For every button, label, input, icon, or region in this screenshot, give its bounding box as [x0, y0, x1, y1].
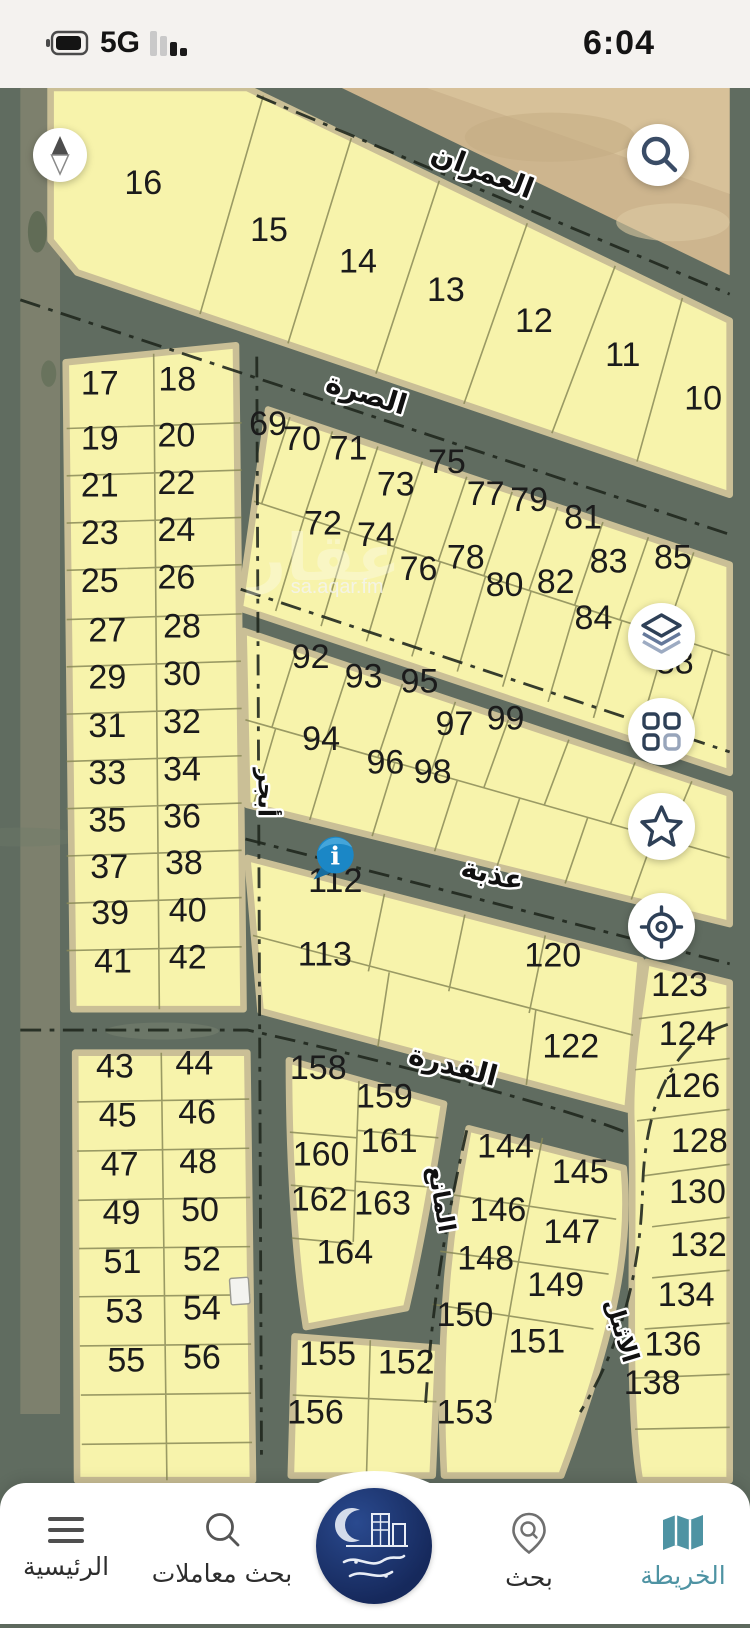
plot-number-78: 78 — [447, 538, 485, 576]
plot-number-113: 113 — [298, 936, 352, 974]
plot-number-153: 153 — [436, 1393, 493, 1431]
nav-label-deals-search: بحث معاملات — [142, 1559, 302, 1588]
plot-number-69: 69 — [249, 405, 287, 443]
plot-number-18: 18 — [158, 361, 196, 399]
plot-number-164: 164 — [316, 1234, 373, 1272]
plot-number-38: 38 — [165, 844, 203, 882]
nav-label-map: الخريطة — [603, 1561, 750, 1590]
plot-number-96: 96 — [366, 744, 404, 782]
plot-number-136: 136 — [645, 1325, 702, 1363]
plot-number-120: 120 — [524, 937, 581, 975]
plot-number-55: 55 — [107, 1341, 145, 1379]
plot-number-79: 79 — [510, 481, 548, 519]
layers-button[interactable] — [628, 603, 695, 670]
plot-number-93: 93 — [345, 658, 383, 696]
plot-number-45: 45 — [99, 1097, 137, 1135]
plot-number-53: 53 — [105, 1292, 143, 1330]
plot-number-138: 138 — [624, 1364, 681, 1402]
plot-number-159: 159 — [356, 1078, 413, 1116]
search-icon — [627, 124, 689, 186]
plot-number-44: 44 — [175, 1044, 213, 1082]
menu-icon — [48, 1517, 84, 1544]
nav-item-search[interactable]: بحث — [449, 1511, 609, 1592]
plot-number-46: 46 — [178, 1094, 216, 1132]
plot-number-149: 149 — [527, 1266, 584, 1304]
plot-number-48: 48 — [179, 1143, 217, 1181]
plot-number-27: 27 — [88, 611, 126, 649]
plot-number-70: 70 — [283, 420, 321, 458]
plot-number-35: 35 — [88, 801, 126, 839]
plot-number-17: 17 — [81, 364, 119, 402]
brand-logo-art — [316, 1488, 432, 1604]
plot-number-156: 156 — [287, 1393, 344, 1431]
plot-number-11: 11 — [605, 336, 640, 374]
plot-number-92: 92 — [292, 638, 330, 676]
plot-number-128: 128 — [671, 1122, 728, 1160]
plot-number-56: 56 — [183, 1339, 221, 1377]
plot-number-15: 15 — [250, 211, 288, 249]
map-search-button[interactable] — [627, 124, 689, 186]
plot-number-34: 34 — [163, 750, 201, 788]
plot-number-23: 23 — [81, 514, 119, 552]
plot-number-73: 73 — [377, 466, 415, 504]
plot-number-83: 83 — [590, 542, 628, 580]
plot-number-147: 147 — [543, 1213, 600, 1251]
favorites-button[interactable] — [628, 793, 695, 860]
plot-number-122: 122 — [542, 1027, 599, 1065]
my-location-button[interactable] — [628, 893, 695, 960]
plot-number-42: 42 — [169, 939, 207, 977]
plot-number-50: 50 — [181, 1191, 219, 1229]
plot-number-19: 19 — [81, 419, 119, 457]
plot-number-71: 71 — [330, 430, 368, 468]
plot-number-160: 160 — [293, 1135, 350, 1173]
nav-label-search: بحث — [449, 1563, 609, 1592]
plot-number-21: 21 — [81, 467, 119, 505]
clock: 6:04 — [583, 24, 655, 63]
plot-number-29: 29 — [88, 659, 126, 697]
info-pin-glyph: i — [330, 842, 340, 872]
pin-search-icon — [507, 1511, 551, 1555]
plot-number-94: 94 — [302, 720, 340, 758]
plot-number-151: 151 — [508, 1323, 565, 1361]
plot-number-152: 152 — [378, 1343, 435, 1381]
plot-number-41: 41 — [94, 942, 132, 980]
plot-number-82: 82 — [537, 563, 575, 601]
plot-number-16: 16 — [124, 164, 162, 202]
plot-number-146: 146 — [470, 1191, 527, 1229]
plot-number-126: 126 — [663, 1067, 720, 1105]
plot-number-162: 162 — [291, 1181, 348, 1219]
plot-number-36: 36 — [163, 798, 201, 836]
nav-item-home[interactable]: الرئيسية — [0, 1511, 146, 1581]
plot-number-12: 12 — [515, 302, 553, 340]
plot-number-52: 52 — [183, 1240, 221, 1278]
plot-number-30: 30 — [163, 655, 201, 693]
plot-number-95: 95 — [401, 662, 439, 700]
plot-number-24: 24 — [157, 511, 195, 549]
plot-number-75: 75 — [428, 443, 466, 481]
categories-button[interactable] — [628, 698, 695, 765]
plot-number-76: 76 — [400, 550, 438, 588]
plot-number-81: 81 — [564, 499, 602, 537]
small-map-marker — [229, 1277, 250, 1305]
battery-icon — [44, 30, 90, 56]
star-icon — [628, 793, 695, 860]
plot-number-33: 33 — [88, 754, 126, 792]
plot-number-28: 28 — [163, 608, 201, 646]
map-icon — [660, 1513, 706, 1553]
plot-number-158: 158 — [290, 1049, 347, 1087]
plot-number-150: 150 — [436, 1296, 493, 1334]
plot-number-155: 155 — [299, 1335, 356, 1373]
plot-number-144: 144 — [477, 1128, 534, 1166]
app-screen: { "status_bar": { "time": "6:04", "netwo… — [0, 0, 750, 1624]
plot-number-145: 145 — [552, 1153, 609, 1191]
compass-icon — [33, 128, 87, 182]
plot-number-98: 98 — [414, 753, 452, 791]
plot-number-25: 25 — [81, 562, 119, 600]
signal-bars-icon — [150, 29, 192, 57]
plot-number-148: 148 — [457, 1239, 514, 1277]
plot-number-37: 37 — [90, 848, 128, 886]
plot-number-26: 26 — [157, 558, 195, 596]
network-label: 5G — [100, 26, 140, 60]
watermark: عقار sa.aqar.fm — [246, 521, 400, 598]
bottom-nav-bar: الرئيسية بحث معاملات بحث — [0, 1483, 750, 1624]
nav-label-home: الرئيسية — [0, 1552, 146, 1581]
status-bar: 5G 6:04 — [0, 0, 750, 88]
crosshair-icon — [628, 893, 695, 960]
plot-number-161: 161 — [361, 1122, 418, 1160]
plot-number-22: 22 — [157, 464, 195, 502]
plot-number-77: 77 — [467, 475, 505, 513]
plot-number-13: 13 — [427, 271, 465, 309]
plot-number-32: 32 — [163, 703, 201, 741]
plot-number-49: 49 — [103, 1194, 141, 1232]
watermark-site: sa.aqar.fm — [291, 576, 384, 598]
plot-number-85: 85 — [654, 538, 692, 576]
plot-number-10: 10 — [684, 380, 722, 418]
layers-icon — [628, 603, 695, 670]
nav-item-deals-search[interactable]: بحث معاملات — [142, 1511, 302, 1588]
street-label: أبجر — [253, 767, 283, 817]
plot-number-40: 40 — [169, 891, 207, 929]
plot-number-163: 163 — [354, 1184, 411, 1222]
plot-number-99: 99 — [487, 699, 525, 737]
plot-number-132: 132 — [670, 1226, 727, 1264]
plot-number-123: 123 — [651, 966, 708, 1004]
plot-number-51: 51 — [104, 1243, 142, 1281]
plot-number-124: 124 — [659, 1015, 716, 1053]
plot-number-130: 130 — [669, 1173, 726, 1211]
plot-number-39: 39 — [91, 894, 129, 932]
plot-number-97: 97 — [436, 705, 474, 743]
plot-number-84: 84 — [575, 599, 613, 637]
plot-number-20: 20 — [157, 416, 195, 454]
plot-number-54: 54 — [183, 1289, 221, 1327]
brand-logo[interactable] — [316, 1488, 432, 1604]
plot-number-31: 31 — [88, 707, 126, 745]
plot-number-47: 47 — [101, 1146, 139, 1184]
status-left-cluster: 5G — [44, 26, 192, 60]
grid-icon — [628, 698, 695, 765]
plot-number-14: 14 — [339, 242, 377, 280]
nav-item-map[interactable]: الخريطة — [603, 1511, 750, 1590]
plot-number-134: 134 — [658, 1276, 715, 1314]
compass-button[interactable] — [33, 128, 87, 182]
search-icon — [202, 1511, 242, 1551]
plot-number-43: 43 — [96, 1047, 134, 1085]
plot-number-80: 80 — [486, 566, 524, 604]
